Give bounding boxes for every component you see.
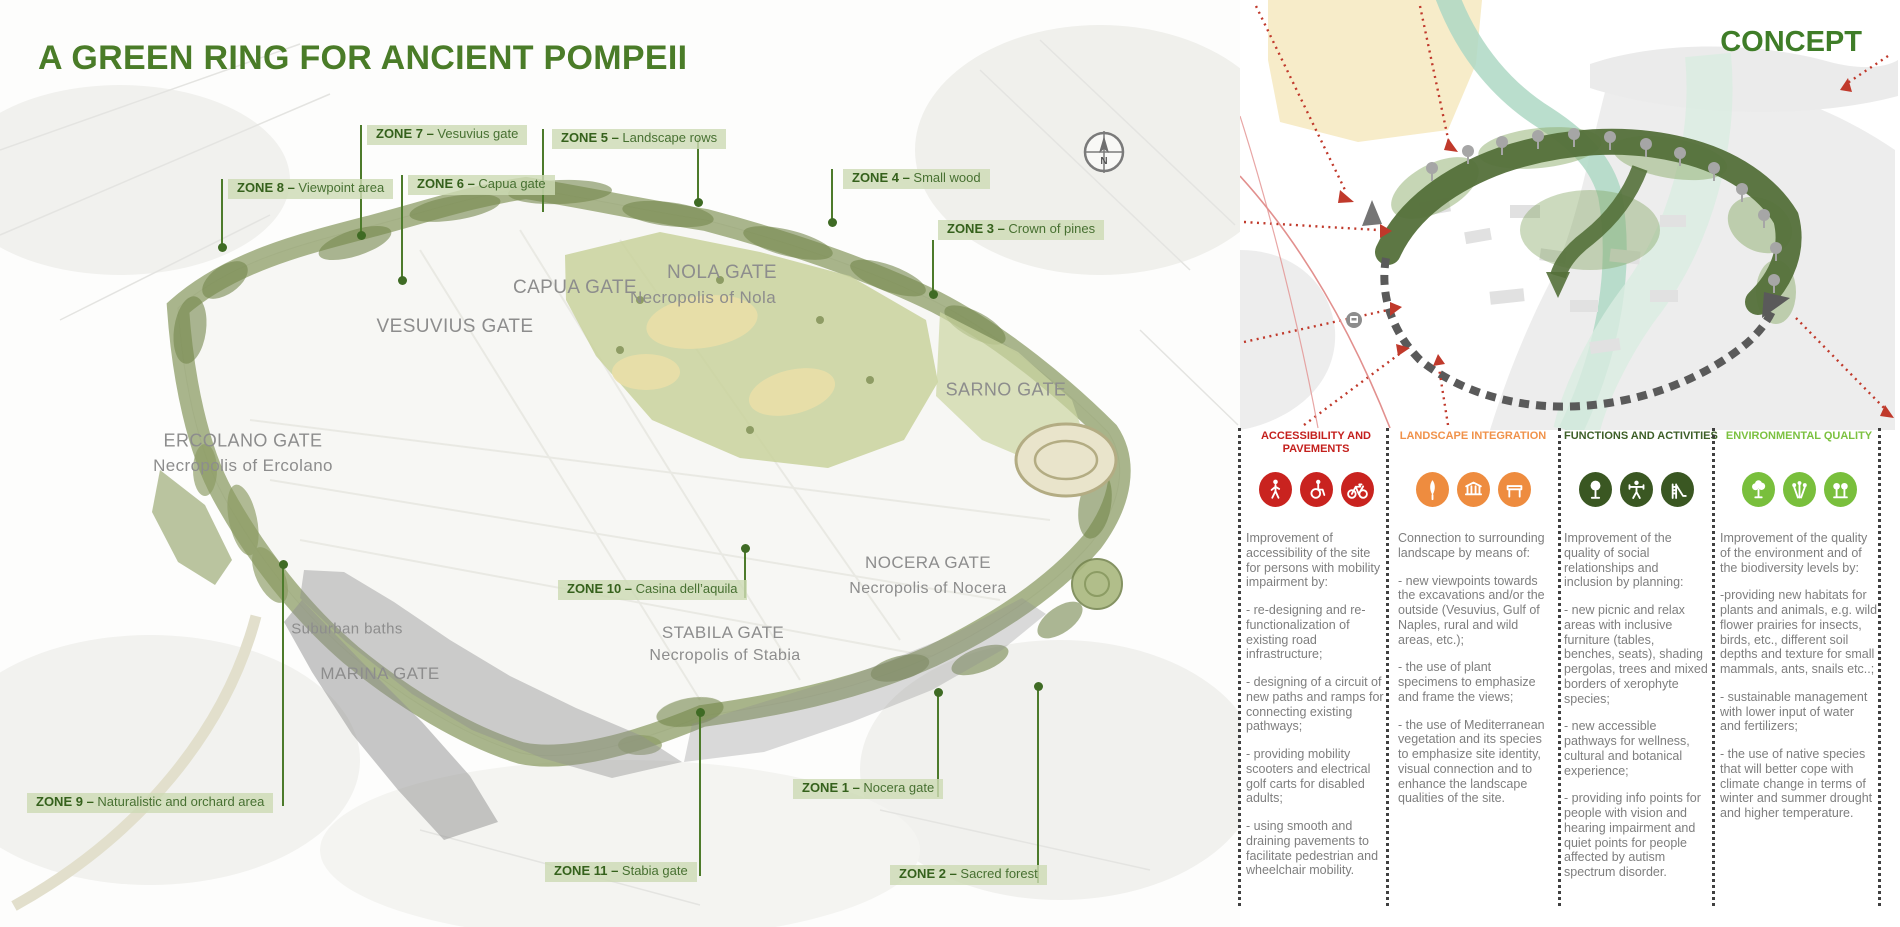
title-line: ACCESSIBILITY AND: [1246, 430, 1386, 443]
zone-label-8: ZONE 8 – Viewpoint area: [228, 179, 393, 199]
map-label-necropolis-of-nocera: Necropolis of Nocera: [849, 580, 1006, 598]
concept-column-title-environment: ENVIRONMENTAL QUALITY: [1720, 430, 1878, 462]
zone-8-number: ZONE 8 –: [237, 180, 295, 195]
zone-6-desc: Capua gate: [475, 176, 546, 191]
concept-column-accessibility: ACCESSIBILITY ANDPAVEMENTSImprovement of…: [1246, 430, 1386, 891]
zone-9-number: ZONE 9 –: [36, 794, 94, 809]
concept-column-title-landscape: LANDSCAPE INTEGRATION: [1398, 430, 1548, 462]
column-separator: [1558, 428, 1561, 906]
concept-column-environment: ENVIRONMENTAL QUALITYImprovement of the …: [1720, 430, 1878, 834]
paragraph: - new viewpoints towards the excavations…: [1398, 574, 1548, 648]
paragraph: - the use of plant specimens to emphasiz…: [1398, 660, 1548, 704]
map-label-necropolis-of-nola: Necropolis of Nola: [630, 288, 776, 308]
map-label-ercolano-gate: ERCOLANO GATE: [164, 431, 323, 452]
paragraph: - new picnic and relax areas with inclus…: [1564, 603, 1708, 706]
concept-heading: CONCEPT: [1712, 26, 1862, 59]
zone-1-leader-dot: [934, 688, 943, 697]
concept-column-text-functions: Improvement of the quality of social rel…: [1564, 531, 1708, 880]
column-separator: [1386, 428, 1389, 906]
zone-8-leader-line: [221, 179, 223, 249]
zone-3-leader-dot: [929, 290, 938, 299]
zone-4-leader-dot: [828, 218, 837, 227]
zone-1-number: ZONE 1 –: [802, 780, 860, 795]
zone-label-3: ZONE 3 – Crown of pines: [938, 220, 1104, 240]
compass-icon: N: [1082, 130, 1126, 174]
zone-7-leader-dot: [357, 231, 366, 240]
paragraph: - the use of native species that will be…: [1720, 747, 1878, 821]
fitness-icon: [1620, 472, 1653, 507]
paragraph: - new accessible pathways for wellness, …: [1564, 719, 1708, 778]
zone-3-leader-line: [932, 240, 934, 296]
zone-4-desc: Small wood: [910, 170, 981, 185]
zone-11-number: ZONE 11 –: [554, 863, 618, 878]
zone-label-2: ZONE 2 – Sacred forest: [890, 865, 1047, 885]
concept-column-text-environment: Improvement of the quality of the enviro…: [1720, 531, 1878, 821]
amphitheatre: [1016, 424, 1116, 496]
park-tree-icon: [1579, 472, 1612, 507]
map-label-vesuvius-gate: VESUVIUS GATE: [377, 316, 534, 338]
map-label-necropolis-of-stabia: Necropolis of Stabia: [649, 647, 800, 665]
zone-5-number: ZONE 5 –: [561, 130, 619, 145]
paragraph: Connection to surrounding landscape by m…: [1398, 531, 1548, 561]
concept-diagram: [1240, 0, 1900, 430]
zone-1-desc: Nocera gate: [860, 780, 934, 795]
concept-column-title-functions: FUNCTIONS AND ACTIVITIES: [1564, 430, 1708, 462]
paragraph: -providing new habitats for plants and a…: [1720, 588, 1878, 677]
map-label-necropolis-of-ercolano: Necropolis of Ercolano: [153, 456, 333, 476]
concept-column-icons-landscape: [1398, 472, 1548, 507]
bus-stop-icon: [1346, 312, 1362, 328]
concept-column-landscape: LANDSCAPE INTEGRATIONConnection to surro…: [1398, 430, 1548, 819]
title-line: ENVIRONMENTAL QUALITY: [1720, 430, 1878, 443]
zone-11-leader-dot: [696, 708, 705, 717]
zone-2-number: ZONE 2 –: [899, 866, 957, 881]
bicycle-icon: [1341, 472, 1374, 507]
zone-2-desc: Sacred forest: [957, 866, 1038, 881]
cypress-icon: [1416, 472, 1449, 507]
concept-column-text-accessibility: Improvement of accessibility of the site…: [1246, 531, 1386, 878]
zone-label-5: ZONE 5 – Landscape rows: [552, 129, 726, 149]
map-label-suburban-baths: Suburban baths: [291, 621, 403, 638]
column-separator: [1878, 428, 1881, 906]
zone-3-number: ZONE 3 –: [947, 221, 1005, 236]
column-separator: [1712, 428, 1715, 906]
zone-label-10: ZONE 10 – Casina dell’aquila: [558, 580, 747, 600]
paragraph: - providing info points for people with …: [1564, 791, 1708, 880]
concept-column-title-accessibility: ACCESSIBILITY ANDPAVEMENTS: [1246, 430, 1386, 462]
zone-label-7: ZONE 7 – Vesuvius gate: [367, 125, 527, 145]
map-label-sarno-gate: SARNO GATE: [946, 380, 1067, 401]
zone-8-desc: Viewpoint area: [295, 180, 384, 195]
zone-label-9: ZONE 9 – Naturalistic and orchard area: [27, 793, 273, 813]
concept-column-icons-functions: [1564, 472, 1708, 507]
wheelchair-icon: [1300, 472, 1333, 507]
paragraph: - designing of a circuit of new paths an…: [1246, 675, 1386, 734]
zone-2-leader-dot: [1034, 682, 1043, 691]
slide-icon: [1661, 472, 1694, 507]
zone-2-leader-line: [1037, 686, 1039, 883]
title-line: PAVEMENTS: [1246, 443, 1386, 456]
map-label-stabila-gate: STABILA GATE: [662, 623, 784, 643]
map-label-capua-gate: CAPUA GATE: [513, 277, 637, 299]
paragraph: - sustainable management with lower inpu…: [1720, 690, 1878, 734]
zone-8-leader-dot: [218, 243, 227, 252]
paragraph: - providing mobility scooters and electr…: [1246, 747, 1386, 806]
zone-11-desc: Stabia gate: [618, 863, 687, 878]
paragraph: - using smooth and draining pavements to…: [1246, 819, 1386, 878]
paragraph: Improvement of the quality of the enviro…: [1720, 531, 1878, 575]
compass-north-label: N: [1100, 156, 1107, 167]
zone-9-desc: Naturalistic and orchard area: [94, 794, 265, 809]
column-separator: [1238, 428, 1241, 906]
pedestrian-icon: [1259, 472, 1292, 507]
paragraph: - the use of Mediterranean vegetation an…: [1398, 718, 1548, 807]
paragraph: Improvement of the quality of social rel…: [1564, 531, 1708, 590]
flowers-icon: [1783, 472, 1816, 507]
zone-10-number: ZONE 10 –: [567, 581, 632, 596]
map-label-nola-gate: NOLA GATE: [667, 262, 777, 284]
zone-5-leader-line: [542, 129, 544, 212]
zone-10-desc: Casina dell’aquila: [632, 581, 738, 596]
zone-11-leader-line: [699, 712, 701, 876]
map-label-nocera-gate: NOCERA GATE: [865, 553, 991, 573]
paragraph: Improvement of accessibility of the site…: [1246, 531, 1386, 590]
title-line: LANDSCAPE INTEGRATION: [1398, 430, 1548, 443]
ruins-icon: [1457, 472, 1490, 507]
grove-icon: [1824, 472, 1857, 507]
map-label-marina-gate: MARINA GATE: [320, 664, 439, 684]
zone-9-leader-dot: [279, 560, 288, 569]
zone-6-leader-line: [401, 175, 403, 282]
zone-label-1: ZONE 1 – Nocera gate: [793, 779, 943, 799]
bench-icon: [1498, 472, 1531, 507]
zone-4-number: ZONE 4 –: [852, 170, 910, 185]
zone-6-leader-dot: [398, 276, 407, 285]
zone-7-desc: Vesuvius gate: [434, 126, 519, 141]
zone-5-leader-dot: [694, 198, 703, 207]
concept-column-text-landscape: Connection to surrounding landscape by m…: [1398, 531, 1548, 806]
zone-3-desc: Crown of pines: [1005, 221, 1095, 236]
zone-label-6: ZONE 6 – Capua gate: [408, 175, 555, 195]
title-line: FUNCTIONS AND ACTIVITIES: [1564, 430, 1708, 443]
page-title: A GREEN RING FOR ANCIENT POMPEII: [38, 39, 687, 78]
zone-label-4: ZONE 4 – Small wood: [843, 169, 990, 189]
zone-4-leader-line: [831, 169, 833, 224]
zone-5-desc: Landscape rows: [619, 130, 717, 145]
zone-9-leader-line: [282, 564, 284, 806]
paragraph: - re-designing and re-functionalization …: [1246, 603, 1386, 662]
concept-column-icons-environment: [1720, 472, 1878, 507]
circular-garden: [1072, 559, 1122, 609]
zone-label-11: ZONE 11 – Stabia gate: [545, 862, 697, 882]
zone-7-number: ZONE 7 –: [376, 126, 434, 141]
tree-icon: [1742, 472, 1775, 507]
concept-column-functions: FUNCTIONS AND ACTIVITIESImprovement of t…: [1564, 430, 1708, 893]
zone-10-leader-dot: [741, 544, 750, 553]
zone-6-number: ZONE 6 –: [417, 176, 475, 191]
concept-column-icons-accessibility: [1246, 472, 1386, 507]
